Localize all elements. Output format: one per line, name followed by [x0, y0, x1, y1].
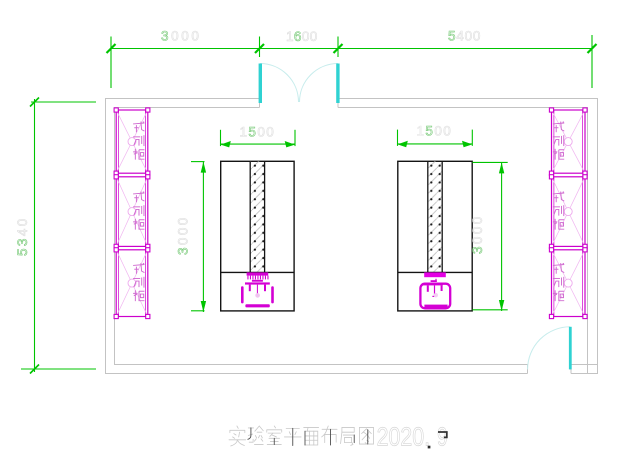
svg-text:5400: 5400: [448, 29, 481, 44]
svg-text:3000: 3000: [176, 215, 191, 255]
svg-text:5340: 5340: [15, 216, 30, 256]
svg-text:3000: 3000: [470, 214, 485, 254]
svg-text:2020.: 2020.: [377, 422, 431, 452]
svg-text:1600: 1600: [286, 29, 318, 44]
svg-text:1500: 1500: [240, 125, 276, 140]
svg-text:3000: 3000: [161, 29, 201, 44]
svg-text:1500: 1500: [417, 124, 453, 139]
